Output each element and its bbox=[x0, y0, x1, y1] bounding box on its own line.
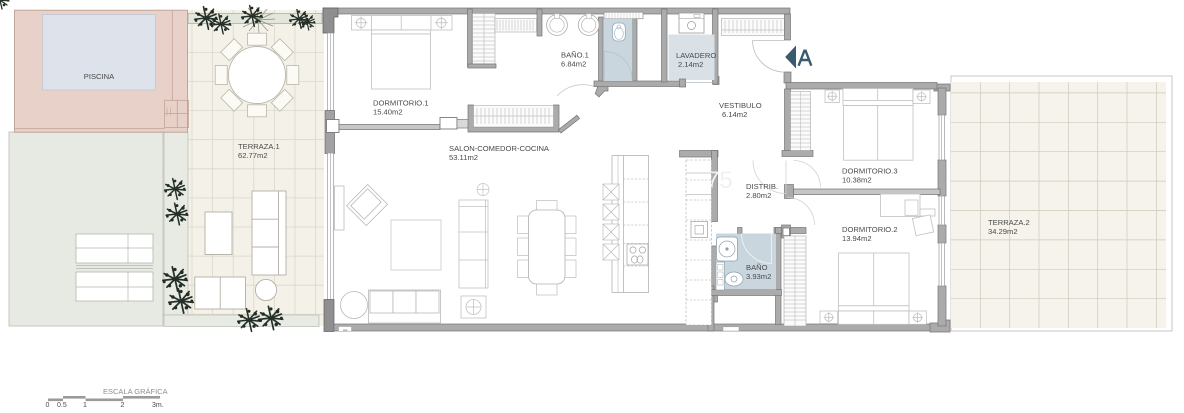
svg-text:DISTRIB.: DISTRIB. bbox=[746, 182, 778, 191]
svg-text:6.14m2: 6.14m2 bbox=[722, 110, 747, 119]
svg-text:TERRAZA.2: TERRAZA.2 bbox=[988, 218, 1030, 227]
svg-text:0: 0 bbox=[46, 402, 50, 409]
svg-text:53.11m2: 53.11m2 bbox=[449, 153, 478, 162]
svg-text:PISCINA: PISCINA bbox=[84, 72, 115, 81]
svg-text:1: 1 bbox=[83, 402, 87, 409]
svg-text:3.93m2: 3.93m2 bbox=[746, 272, 771, 281]
svg-text:2.14m2: 2.14m2 bbox=[678, 60, 703, 69]
svg-text:2: 2 bbox=[121, 402, 125, 409]
svg-text:ESCALA GRÁFICA: ESCALA GRÁFICA bbox=[103, 387, 168, 396]
svg-text:62.77m2: 62.77m2 bbox=[238, 151, 268, 160]
svg-text:TERRAZA.1: TERRAZA.1 bbox=[238, 142, 280, 151]
svg-text:BAÑO.1: BAÑO.1 bbox=[561, 51, 589, 60]
svg-text:0.5: 0.5 bbox=[57, 402, 67, 409]
svg-text:DORMITORIO.1: DORMITORIO.1 bbox=[373, 99, 429, 108]
svg-text:3m.: 3m. bbox=[152, 402, 164, 409]
svg-text:DORMITORIO.2: DORMITORIO.2 bbox=[842, 225, 898, 234]
svg-text:BAÑO: BAÑO bbox=[746, 263, 768, 272]
svg-text:VESTIBULO: VESTIBULO bbox=[719, 101, 762, 110]
svg-text:6.84m2: 6.84m2 bbox=[561, 60, 586, 69]
svg-text:SALON-COMEDOR-COCINA: SALON-COMEDOR-COCINA bbox=[449, 144, 550, 153]
svg-text:LAVADERO: LAVADERO bbox=[676, 51, 716, 60]
svg-text:13.94m2: 13.94m2 bbox=[842, 234, 872, 243]
svg-text:2.80m2: 2.80m2 bbox=[746, 191, 771, 200]
svg-text:15.40m2: 15.40m2 bbox=[373, 108, 403, 117]
svg-text:DORMITORIO.3: DORMITORIO.3 bbox=[842, 167, 898, 176]
svg-text:34.29m2: 34.29m2 bbox=[988, 227, 1018, 236]
svg-text:10.38m2: 10.38m2 bbox=[842, 176, 872, 185]
